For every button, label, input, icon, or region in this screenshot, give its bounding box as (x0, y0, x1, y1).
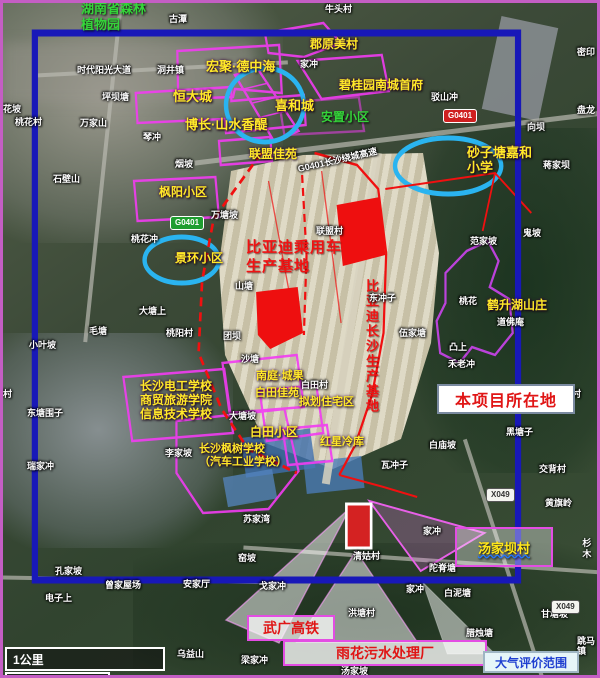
scale-bar-ft: 3000英尺 (5, 672, 110, 678)
project-site-callout: 本项目所在地 (437, 384, 575, 414)
red-road-line-southeast (339, 475, 417, 497)
village-callout: 汤家坝村 (455, 527, 553, 567)
outline-planned-residential (260, 385, 324, 441)
outline-baitian-jiayuan (222, 355, 303, 413)
outline-schools-area (123, 369, 233, 441)
air-range-callout: 大气评价范围 (483, 651, 579, 673)
project-parcel-mid (256, 287, 303, 349)
outline-bigui-yuan (298, 55, 389, 99)
outline-fengyang-xiaoqu (134, 177, 219, 221)
road-sign-g0401: G0401 (443, 109, 477, 123)
satellite-map: 湖南省森林 植物园古潭牛头村郡原美村家冲宏聚·德中海时代阳光大道洞井镇碧桂园南城… (0, 0, 600, 678)
outline-auto-school-area (176, 409, 298, 513)
project-parcel-north (337, 197, 386, 266)
road-sign-x049: X049 (486, 488, 515, 502)
sewage-plant-parcel (346, 504, 371, 548)
outline-junyuan-meicun (265, 23, 341, 57)
byd-inner-dashed (302, 175, 306, 335)
road-sign-g0401: G0401 (170, 216, 204, 230)
scale-bar-km: 1公里 (5, 647, 165, 671)
rail-callout: 武广高铁 (247, 615, 335, 641)
road-sign-x049: X049 (551, 600, 580, 614)
sewage-plant-callout: 雨花污水处理厂 (283, 640, 487, 666)
outline-heshenghu-shanzhuang (437, 241, 513, 363)
